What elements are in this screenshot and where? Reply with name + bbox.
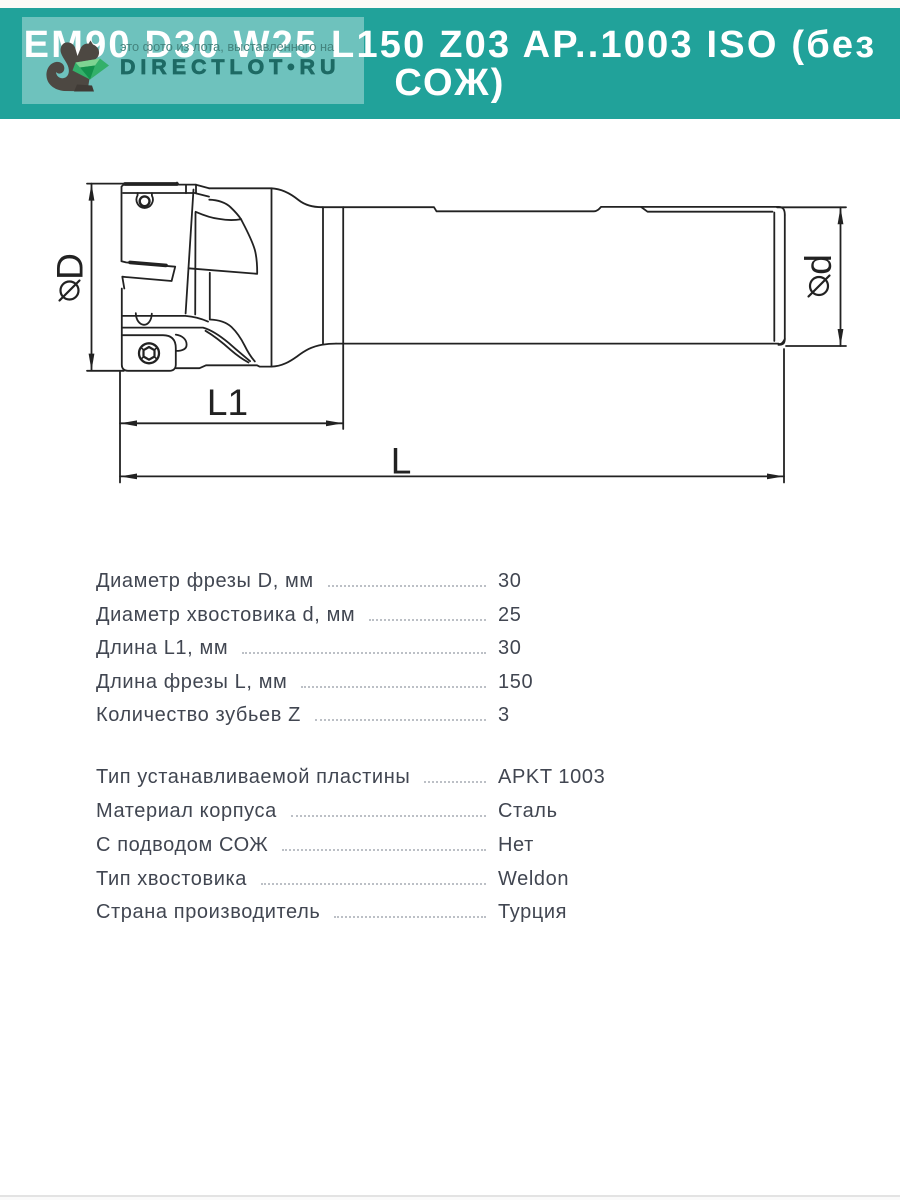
svg-text:L: L [391,441,412,482]
svg-text:D: D [50,253,91,280]
svg-text:d: d [798,254,839,275]
svg-text:L1: L1 [207,382,248,423]
